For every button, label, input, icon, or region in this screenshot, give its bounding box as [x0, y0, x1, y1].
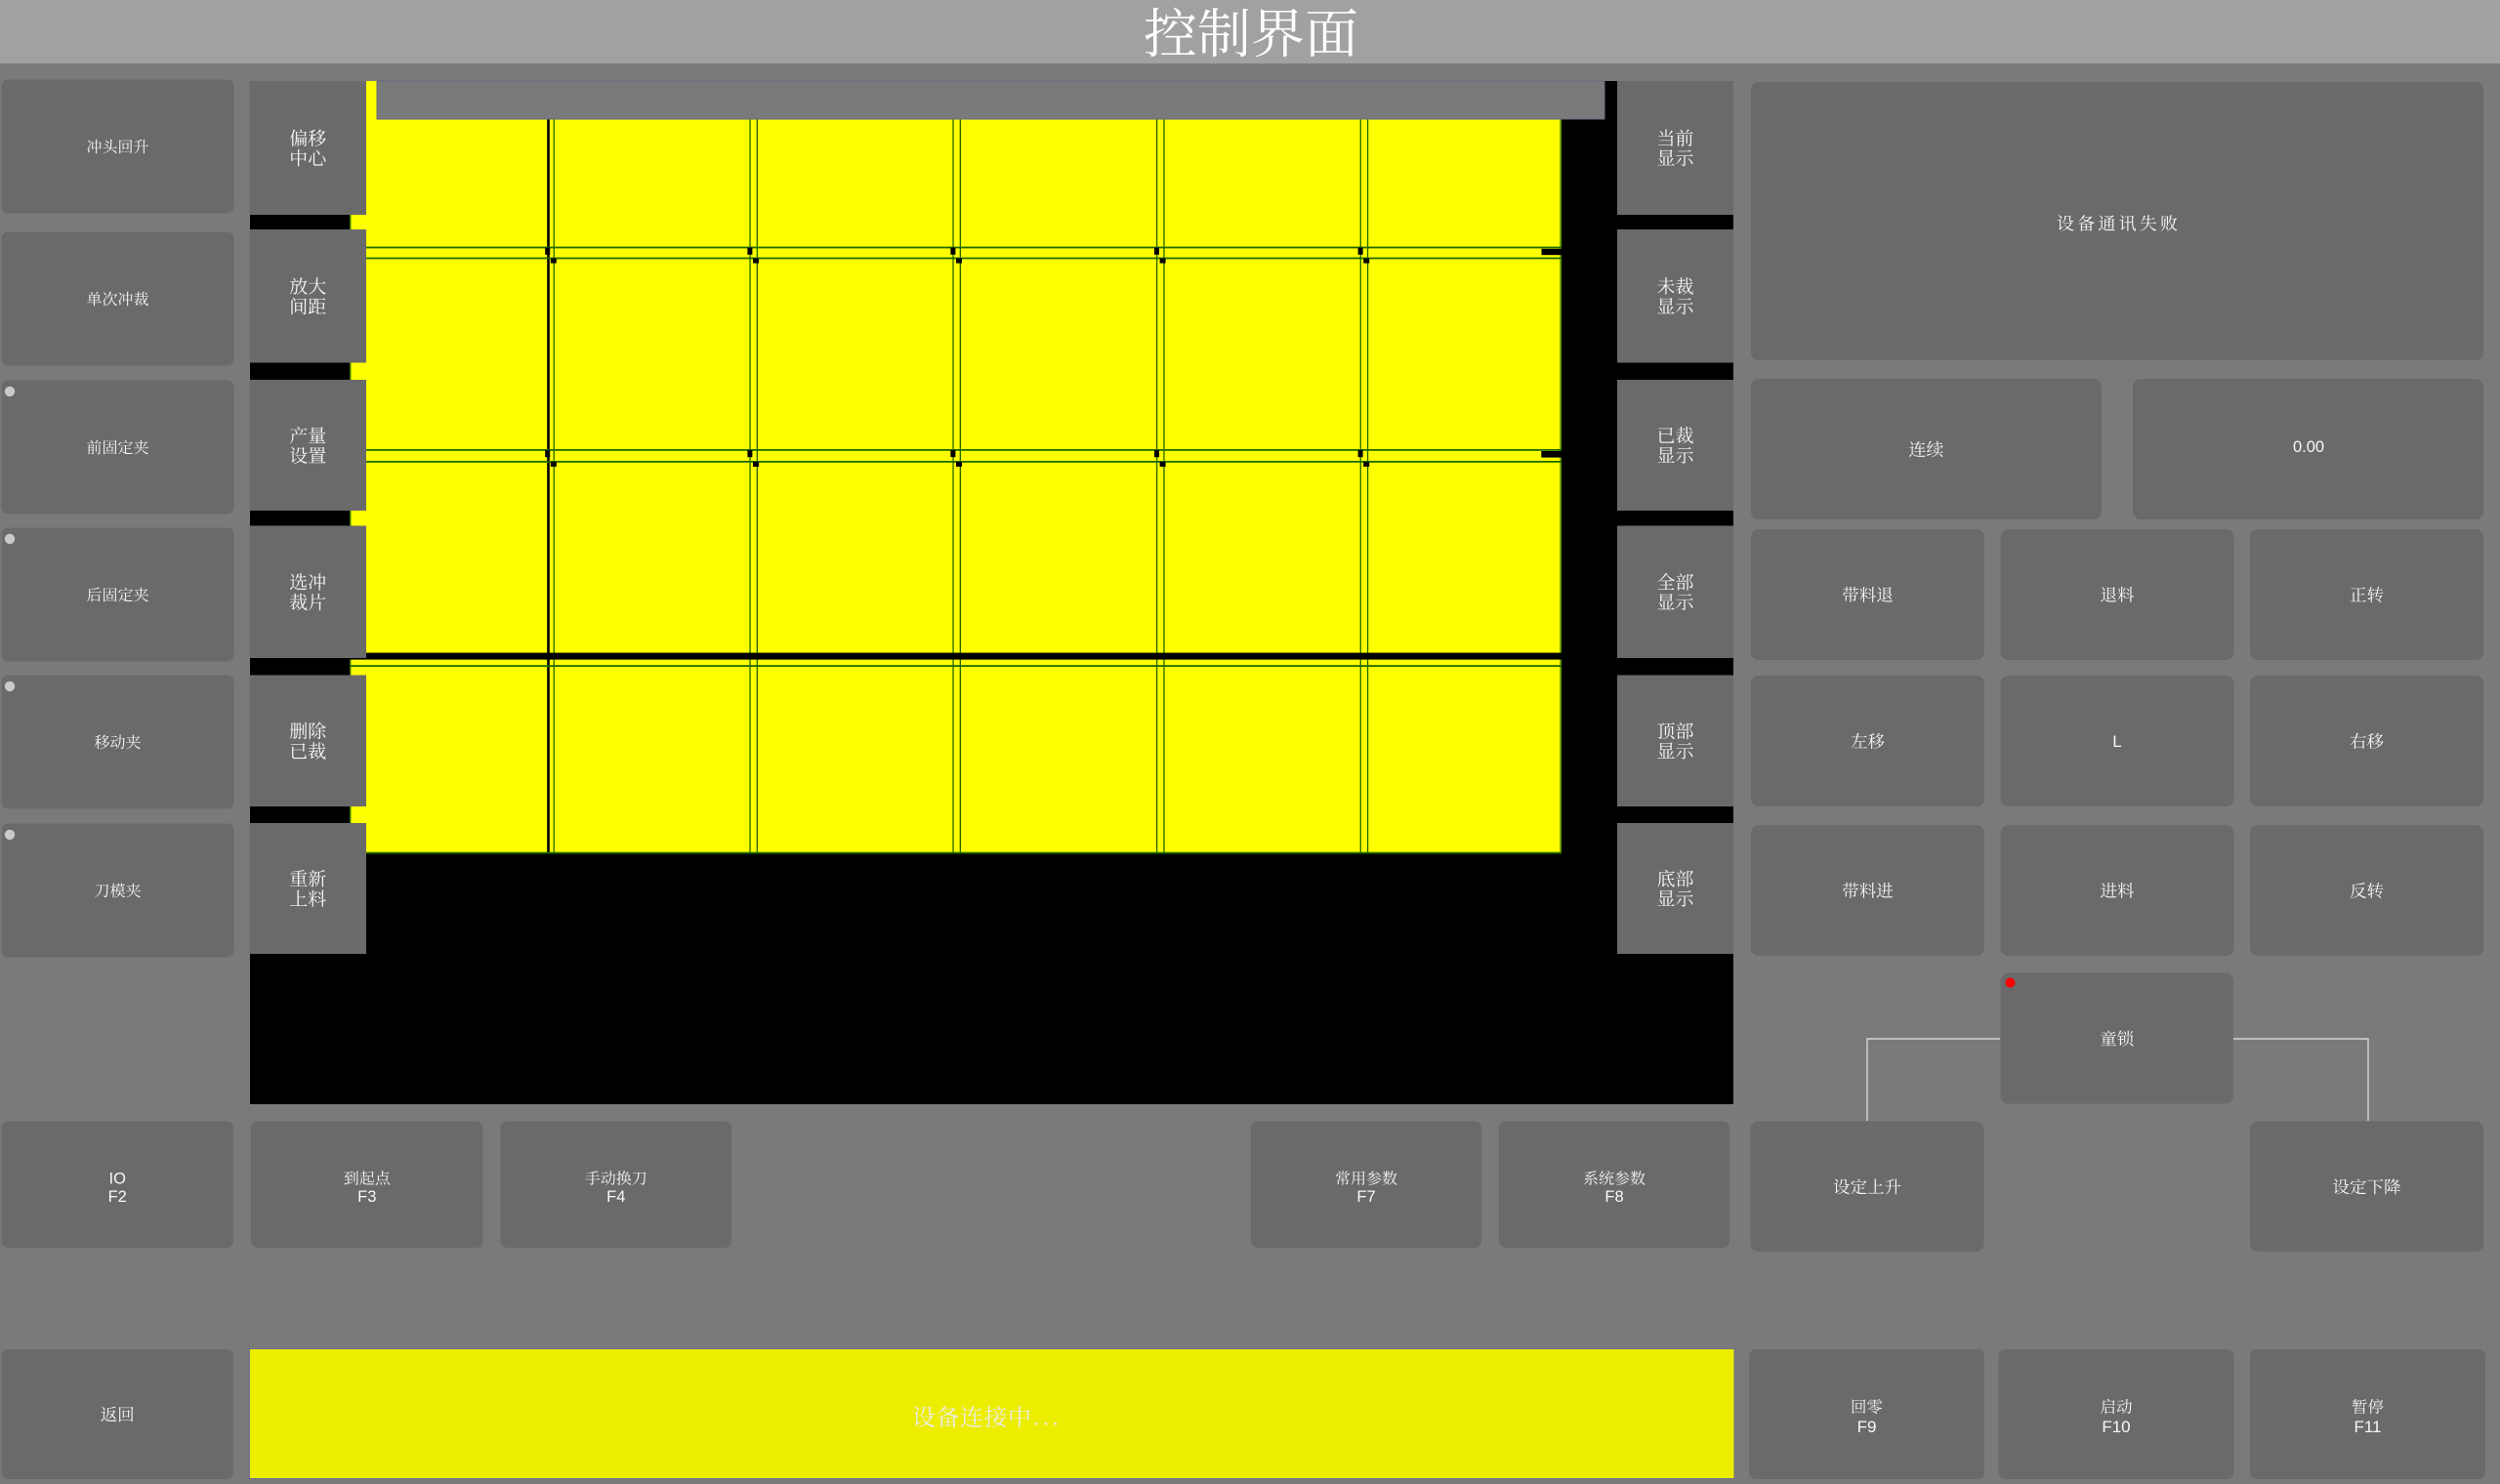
svg-text:F9: F9: [1857, 1418, 1877, 1436]
svg-text:F3: F3: [357, 1188, 376, 1206]
svg-text:F2: F2: [108, 1188, 127, 1206]
svg-text:IO: IO: [108, 1171, 126, 1188]
svg-text:0.00: 0.00: [2293, 438, 2324, 456]
svg-text:...: ...: [1033, 1405, 1062, 1431]
svg-text:F4: F4: [606, 1188, 625, 1206]
svg-text:F10: F10: [2102, 1418, 2130, 1436]
svg-text:F11: F11: [2354, 1418, 2381, 1436]
svg-text:F7: F7: [1356, 1188, 1375, 1206]
svg-text:L: L: [2112, 732, 2121, 751]
svg-text:F8: F8: [1604, 1188, 1623, 1206]
